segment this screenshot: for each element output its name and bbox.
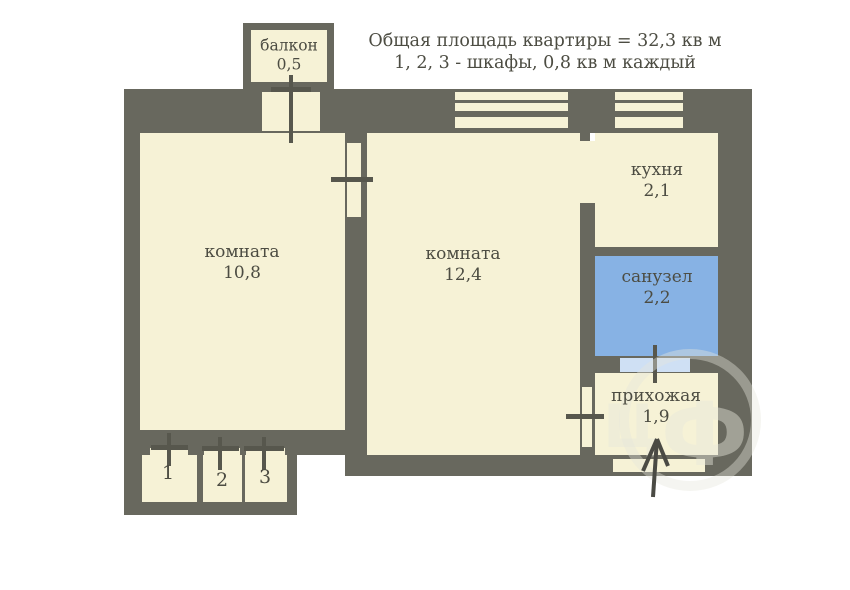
closet1-number: 1 (162, 462, 174, 484)
room2-name: комната (425, 244, 500, 265)
closet2-door-mark (202, 446, 239, 451)
window-stripe (455, 92, 568, 100)
window-stripe (615, 92, 683, 100)
window-stripe (455, 103, 568, 111)
closet2-number: 2 (216, 469, 228, 491)
bathroom-area: 2,2 (621, 288, 692, 309)
total-area-text: Общая площадь квартиры = 32,3 кв м (368, 31, 721, 53)
closets-note-text: 1, 2, 3 - шкафы, 0,8 кв м каждый (368, 53, 721, 75)
bathroom-label: санузел 2,2 (621, 267, 692, 310)
closet1-door-mark (151, 445, 188, 450)
balcony-door-mark (271, 87, 311, 92)
room1-label: комната 10,8 (204, 242, 279, 285)
room2-area: 12,4 (425, 265, 500, 286)
window-stripe (615, 117, 683, 128)
bathroom-name: санузел (621, 267, 692, 288)
window-stripe (615, 103, 683, 111)
kitchen-name: кухня (631, 160, 683, 181)
hallway-area: 1,9 (611, 407, 701, 428)
room2-floor (367, 133, 580, 455)
balcony-label: балкон 0,5 (260, 37, 318, 76)
entrance-arrow-icon (635, 430, 685, 505)
rooms-door-mark (331, 177, 373, 182)
balcony-door-mark (289, 75, 293, 143)
closet3-number: 3 (259, 466, 271, 488)
closet3-door-mark (244, 446, 284, 451)
floor-plan: Общая площадь квартиры = 32,3 кв м 1, 2,… (0, 0, 850, 590)
kitchen-area: 2,1 (631, 181, 683, 202)
plan-note: Общая площадь квартиры = 32,3 кв м 1, 2,… (368, 31, 721, 75)
kitchen-label: кухня 2,1 (631, 160, 683, 203)
room1-name: комната (204, 242, 279, 263)
closet2-door-mark (218, 437, 222, 470)
wall-kitchen-bottom (580, 247, 718, 256)
wall-left (124, 89, 140, 452)
balcony-area: 0,5 (260, 56, 318, 75)
room1-area: 10,8 (204, 263, 279, 284)
room2-label: комната 12,4 (425, 244, 500, 287)
balcony-name: балкон (260, 37, 318, 56)
window-stripe (455, 117, 568, 128)
hallway-name: прихожая (611, 386, 701, 407)
kitchen-passage-opening (580, 141, 595, 203)
hallway-label: прихожая 1,9 (611, 386, 701, 429)
